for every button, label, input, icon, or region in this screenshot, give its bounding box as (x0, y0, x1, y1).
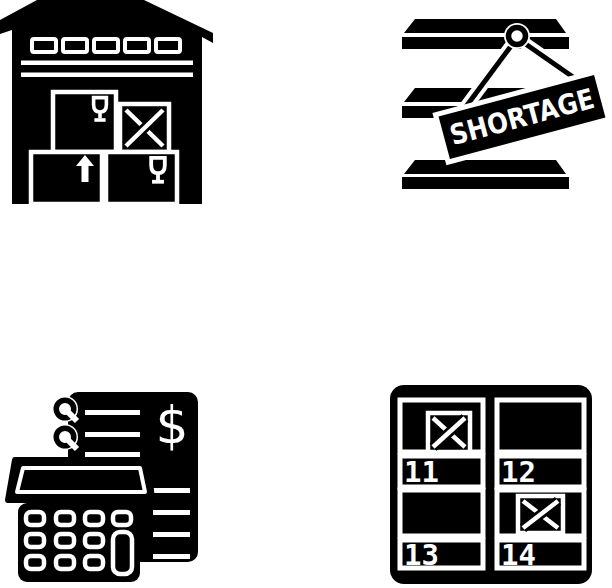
icon-sheet: SHORTAGE (0, 0, 612, 588)
bin-number: 11 (404, 455, 439, 489)
facade-stripe (21, 61, 193, 66)
dollar-sign: $ (155, 395, 188, 455)
crossed-box (518, 496, 563, 533)
storage-bins-icon: 11 12 13 14 (380, 370, 612, 588)
bin-number: 13 (404, 538, 439, 572)
binding-ring-icon (52, 424, 78, 450)
pin-icon (504, 23, 530, 49)
bin-number: 14 (501, 538, 536, 572)
crossed-box (428, 413, 470, 452)
facade-stripe (21, 73, 193, 78)
shelf-row (402, 19, 569, 49)
box-this-side-up (31, 152, 102, 204)
shelf-row (402, 160, 569, 189)
warehouse-icon (0, 0, 220, 210)
calculator (8, 460, 152, 582)
shortage-icon: SHORTAGE (390, 0, 610, 210)
bin-number: 12 (501, 455, 536, 489)
cargo-boxes (31, 92, 177, 204)
shortage-sign: SHORTAGE (432, 69, 610, 165)
binding-ring-icon (52, 396, 78, 422)
cost-calculation-icon: $ (0, 370, 210, 588)
